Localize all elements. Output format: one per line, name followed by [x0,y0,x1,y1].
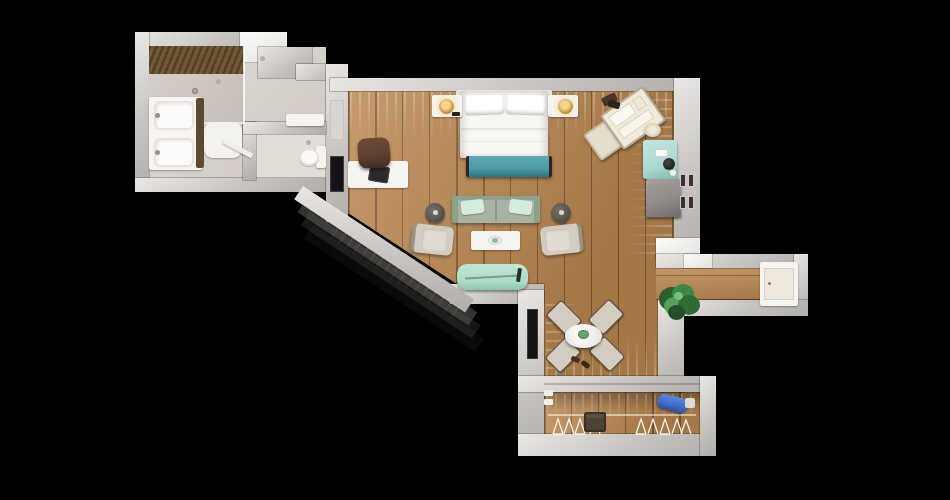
wall-frame [688,196,694,209]
armchair-cushion [421,228,447,251]
fridge-card [655,149,668,157]
desk-chair [357,137,391,169]
bathroom-bottom-wall [135,178,326,192]
lamp-right [558,99,573,114]
faucet-top [155,113,160,118]
cabinet [646,179,681,217]
side-table-cup [559,210,564,215]
shower-glass-panel [243,46,245,124]
bed-pillow-left [465,94,505,114]
hat [644,123,661,137]
sofa-seam [495,200,497,221]
faucet-bottom [155,150,160,155]
closet-bottom-wall [518,434,716,456]
shower-slat-ceiling [149,46,244,74]
bedroom-right-wall [674,78,700,258]
closet-shelf-item [544,390,553,396]
bed-fold-line [461,128,547,130]
wall-frame [680,174,686,187]
armchair-left [410,223,455,256]
ceiling-light [306,140,311,145]
closet-door-track [544,383,700,385]
hallway-top-step [684,254,712,268]
side-table-cup [433,210,438,215]
plant-leaves [674,292,683,300]
ceiling-light [260,56,265,61]
vanity-trim [196,98,204,168]
bathroom-wall-shelf [286,114,324,126]
ironing-board-bracket [685,398,695,408]
bed-bench [466,156,552,177]
shower-drain [192,88,198,94]
bathroom-door-recess [330,100,344,140]
vanity-sink-top [154,101,194,130]
hangers [550,414,692,436]
door-handle [768,282,771,285]
floor-plan-render [0,0,950,500]
armchair-right [540,223,585,256]
armchair-cushion [544,228,570,251]
wall-tv [331,157,343,191]
toilet-bowl [299,148,319,166]
sofa-pillow-left [460,199,485,216]
sofa-pillow-right [508,199,533,216]
wall-frame [688,174,694,187]
ceiling-light [216,79,221,84]
coffee-table-plant [492,238,498,243]
plant-leaves [668,305,685,320]
bed-pillow-right [506,94,546,114]
dining-wall-tv [528,310,537,358]
bed-fold-line-2 [461,141,547,142]
table-centerpiece [579,331,588,338]
phone-on-nightstand [452,112,460,116]
bathroom-left-wall [135,32,149,192]
closet-shelf-item [544,399,553,405]
closet-right-wall [700,376,716,456]
kettle [663,158,675,170]
cup [670,170,676,176]
laundry-basket [584,412,606,432]
vanity-sink-bottom [154,138,194,167]
wall-frame [680,196,686,209]
